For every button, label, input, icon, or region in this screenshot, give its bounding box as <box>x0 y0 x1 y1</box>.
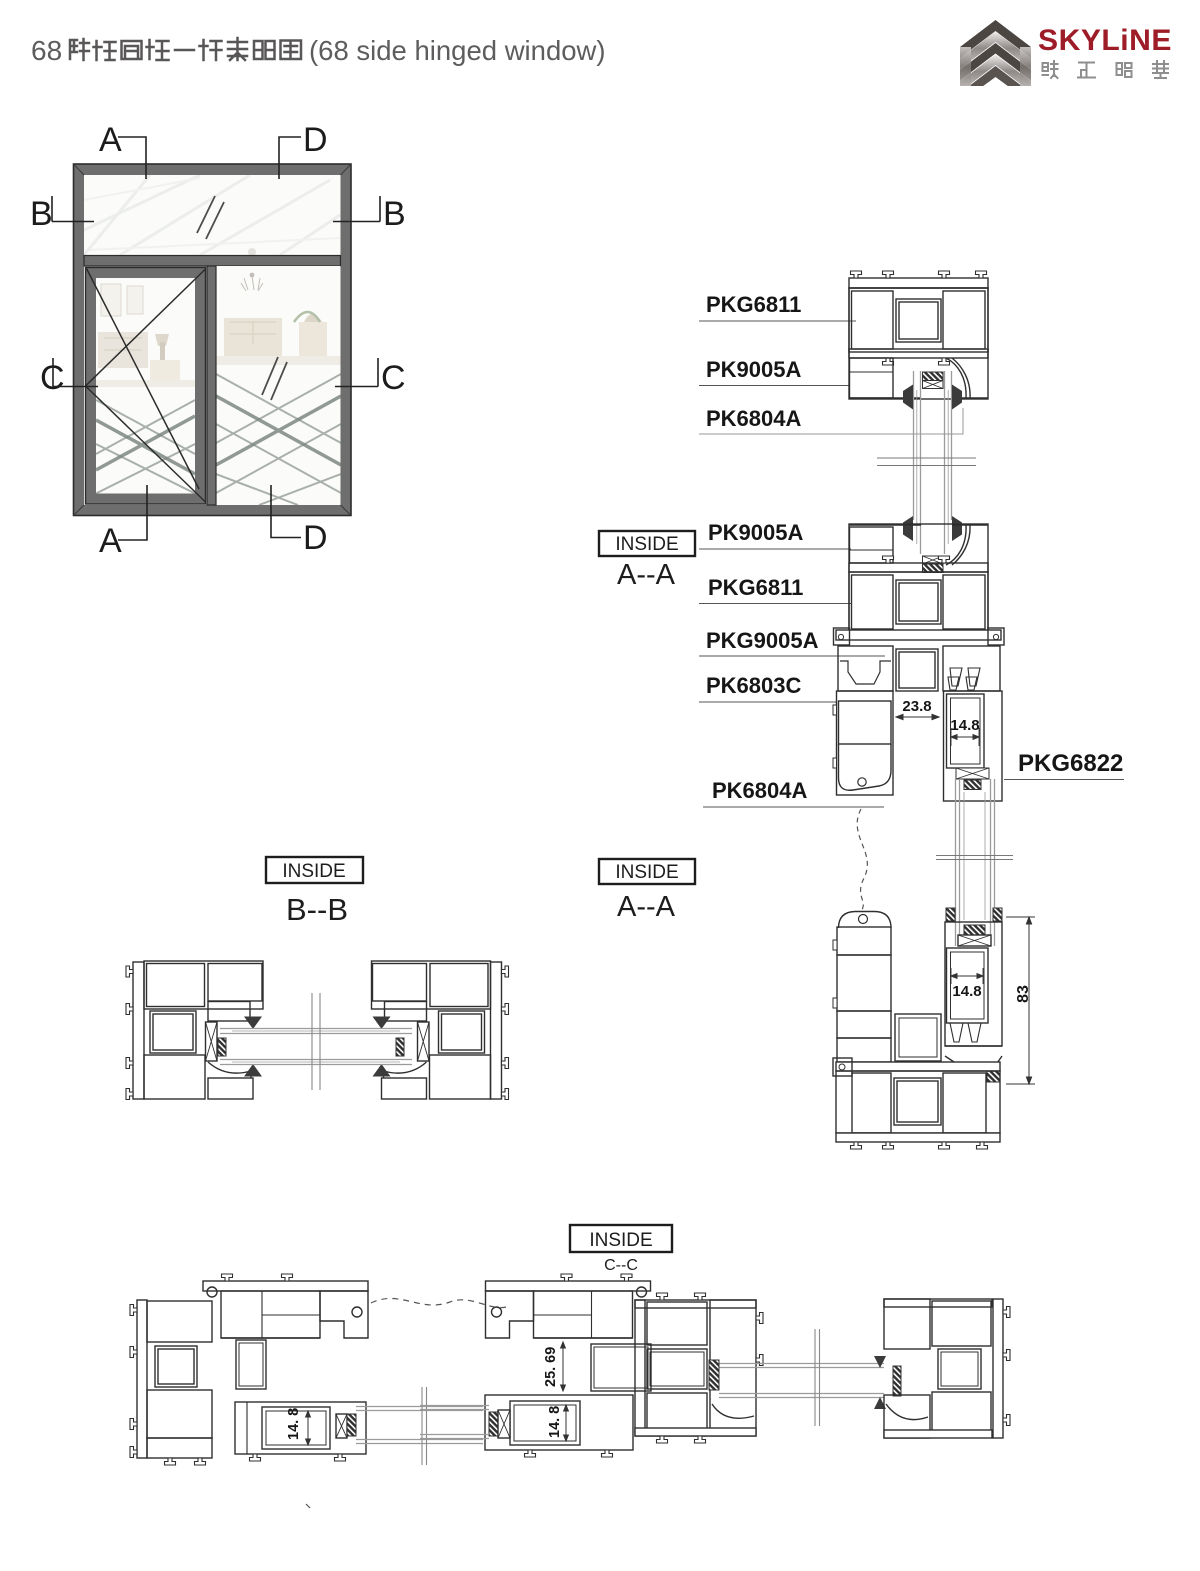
svg-text:B--B: B--B <box>286 892 348 927</box>
svg-text:INSIDE: INSIDE <box>589 1230 652 1251</box>
svg-text:C: C <box>381 359 406 397</box>
svg-text:14.8: 14.8 <box>950 717 979 734</box>
svg-text:A: A <box>99 121 122 159</box>
svg-text:PK9005A: PK9005A <box>708 520 804 545</box>
svg-text:PK6804A: PK6804A <box>712 778 808 803</box>
svg-text:14. 8: 14. 8 <box>286 1408 302 1440</box>
svg-text:B: B <box>30 195 53 233</box>
svg-text:83: 83 <box>1015 985 1032 1003</box>
svg-text:14.8: 14.8 <box>952 983 981 1000</box>
svg-text:PK9005A: PK9005A <box>706 357 802 382</box>
svg-text:PKG6811: PKG6811 <box>708 575 803 600</box>
svg-text:PK6804A: PK6804A <box>706 406 802 431</box>
svg-text:C--C: C--C <box>604 1257 638 1274</box>
svg-text:(68 side hinged window): (68 side hinged window) <box>309 35 606 66</box>
svg-text:25. 69: 25. 69 <box>543 1347 559 1387</box>
svg-text:68: 68 <box>31 35 62 66</box>
svg-text:A: A <box>99 522 122 560</box>
svg-text:14. 8: 14. 8 <box>547 1406 563 1438</box>
svg-text:D: D <box>303 519 328 557</box>
svg-text:23.8: 23.8 <box>902 698 931 715</box>
svg-text:PKG9005A: PKG9005A <box>706 628 819 653</box>
svg-text:PKG6811: PKG6811 <box>706 292 801 317</box>
svg-text:INSIDE: INSIDE <box>282 861 345 882</box>
svg-text:D: D <box>303 121 328 159</box>
svg-text:A--A: A--A <box>617 891 676 923</box>
svg-text:B: B <box>383 195 406 233</box>
svg-text:PK6803C: PK6803C <box>706 673 802 698</box>
svg-text:SKYLiNE: SKYLiNE <box>1038 24 1172 57</box>
svg-text:INSIDE: INSIDE <box>615 862 678 883</box>
svg-text:A--A: A--A <box>617 559 676 591</box>
svg-text:PKG6822: PKG6822 <box>1018 750 1123 777</box>
svg-text:INSIDE: INSIDE <box>615 534 678 555</box>
